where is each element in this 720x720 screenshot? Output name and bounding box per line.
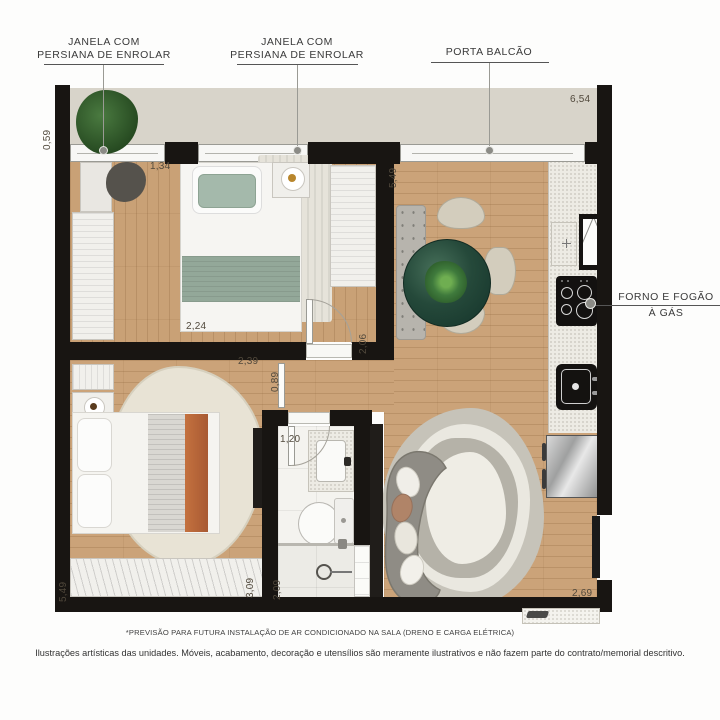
- wall-right-upper: [597, 85, 612, 515]
- dim-hall-wall: 2,39: [238, 356, 258, 367]
- wall-bedroom2-living: [376, 160, 394, 360]
- refrigerator-handle-1: [542, 443, 546, 461]
- window-label-1-line2: PERSIANA DE ENROLAR: [36, 49, 172, 62]
- bathroom-door-sill: [288, 412, 330, 424]
- dim-bedroom1-width: 5,49: [58, 572, 69, 602]
- wall-bathroom-top-left: [278, 410, 288, 426]
- dim-living-depth: 5,49: [388, 150, 399, 188]
- window-label-2-line2: PERSIANA DE ENROLAR: [229, 49, 365, 62]
- bedroom1-tv: [253, 428, 262, 508]
- shower-niche: [354, 545, 370, 597]
- dining-chair-top: [437, 197, 485, 229]
- stove-label-line2: À GÁS: [612, 307, 720, 320]
- dim-kitchen-bottom: 2,69: [572, 588, 592, 599]
- window-label-1: JANELA COM PERSIANA DE ENROLAR: [36, 36, 172, 62]
- window-label-1-leader: [103, 65, 104, 147]
- stove-label-line: [594, 305, 720, 306]
- bedroom2-wardrobe-left: [72, 212, 114, 340]
- refrigerator-handle-2: [542, 469, 546, 489]
- dim-bedroom2-top: 1,34: [150, 161, 170, 172]
- wall-stub-top-3: [585, 142, 597, 164]
- shower-handle: [338, 539, 347, 549]
- refrigerator: [546, 435, 600, 498]
- window-label-2-line1: JANELA COM: [229, 36, 365, 49]
- window-label-1-line1: JANELA COM: [36, 36, 172, 49]
- bedroom2-door-sill: [306, 344, 352, 358]
- counter-faucet-mark2: [566, 239, 567, 248]
- window-label-2-leader: [297, 65, 298, 147]
- balcony-door-leader: [489, 63, 490, 147]
- window-label-1-underline: [44, 64, 164, 65]
- floor-plan: 0,59 1,34 6,54 5,49 2,24 2,39 0,89 2,06 …: [0, 0, 720, 720]
- bedroom1-lamp-bulb: [90, 403, 97, 410]
- dim-ledge-depth: 0,59: [42, 114, 53, 150]
- bedroom1-knit-runner: [148, 414, 185, 532]
- table-plant: [425, 261, 467, 303]
- bedroom1-pillow-1: [77, 418, 112, 472]
- wall-left: [55, 85, 70, 612]
- bedroom1-wardrobe: [70, 558, 268, 597]
- footnote-disclaimer: Ilustrações artísticas das unidades. Móv…: [0, 648, 720, 658]
- bathroom-faucet: [344, 457, 351, 466]
- dim-plan-width: 6,54: [570, 94, 590, 105]
- dim-living-wall: 2,06: [358, 316, 369, 354]
- bedroom2-pillow-sage: [198, 174, 256, 208]
- ac-condenser-mark: [526, 611, 549, 618]
- balcony-ledge: [70, 88, 597, 145]
- window-label-2-dot: [293, 146, 302, 155]
- entry-door-leaf: [592, 516, 600, 578]
- wall-bathroom-right: [354, 410, 370, 545]
- sofa: [380, 450, 456, 606]
- balcony-door-label: PORTA BALCÃO: [421, 46, 557, 59]
- dim-bedroom1-wall: 3,09: [245, 570, 256, 598]
- window-label-1-dot: [99, 146, 108, 155]
- bedroom1-dresser: [72, 364, 114, 390]
- stove-label-line1: FORNO E FOGÃO: [612, 291, 720, 304]
- dim-bathroom-width: 1,20: [280, 434, 300, 445]
- kitchen-sink: [556, 364, 597, 410]
- dim-bedroom2-wall: 2,24: [186, 321, 206, 332]
- balcony-door-underline: [431, 62, 549, 63]
- dim-shower: 2,09: [272, 572, 283, 600]
- toilet-button: [341, 518, 346, 523]
- shower-arm: [330, 571, 352, 573]
- counter-sink-area: [551, 222, 577, 266]
- wall-bathroom-left: [262, 410, 278, 597]
- dim-hall-door: 0,89: [270, 354, 281, 392]
- window-label-2: JANELA COM PERSIANA DE ENROLAR: [229, 36, 365, 62]
- balcony-door-dot: [485, 146, 494, 155]
- bedroom2-closet-right: [330, 165, 376, 287]
- bedroom2-lamp-bulb: [288, 174, 296, 182]
- footnote-ac: *PREVISÃO PARA FUTURA INSTALAÇÃO DE AR C…: [0, 628, 640, 637]
- living-tv: [370, 424, 383, 602]
- bedroom2-blanket-sage: [182, 256, 300, 302]
- stove-label-dot: [585, 298, 596, 309]
- bedroom1-pillow-2: [77, 474, 112, 528]
- bedroom1-blanket-terracotta: [185, 414, 208, 532]
